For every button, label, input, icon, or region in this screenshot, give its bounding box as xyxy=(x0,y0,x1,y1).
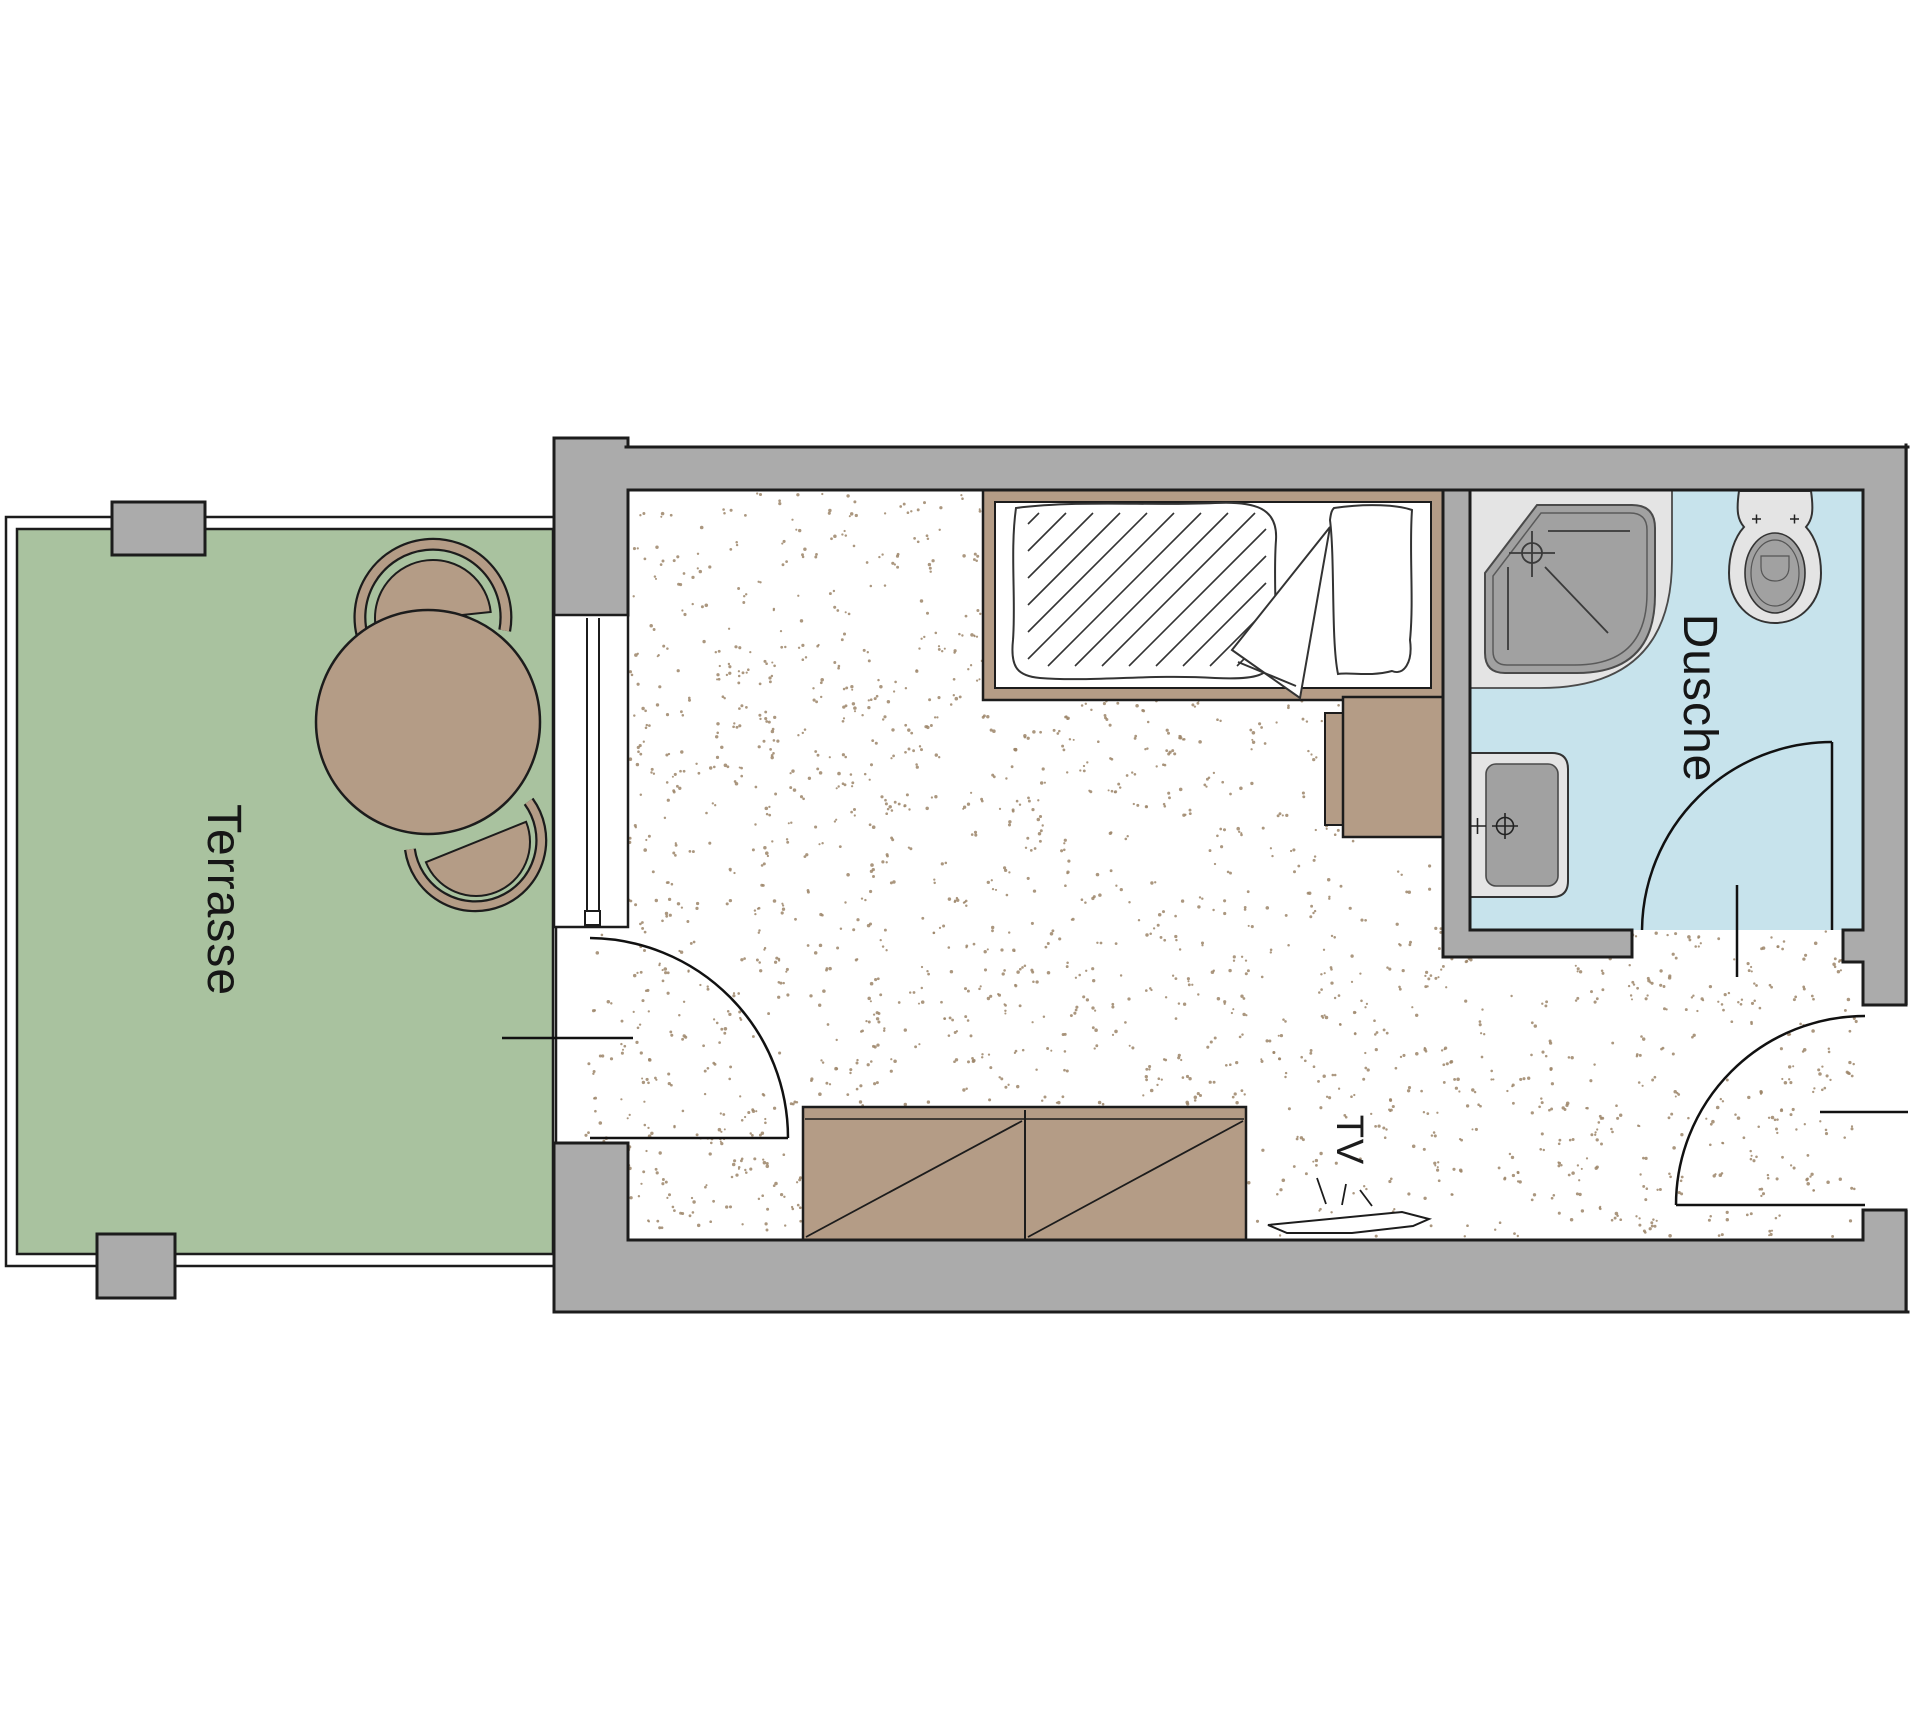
terrace-window xyxy=(554,615,628,927)
toilet xyxy=(1729,491,1821,623)
wall-west-pillar-top xyxy=(554,438,628,615)
wall-east-lower xyxy=(1863,1210,1908,1312)
toilet-flush xyxy=(1761,556,1789,581)
shower-room: Dusche xyxy=(1469,490,1863,930)
terrace-post-bottom xyxy=(97,1234,175,1298)
shower-room-label: Dusche xyxy=(1673,614,1726,783)
window-frame xyxy=(554,615,628,927)
bed-pillow xyxy=(1330,505,1412,674)
terrace: Terrasse xyxy=(6,517,561,1266)
terrace-post-top xyxy=(112,502,205,555)
floor-plan: Terrasse TV xyxy=(0,0,1920,1724)
wall-south xyxy=(554,1240,1908,1312)
tv-label: TV xyxy=(1328,1115,1370,1166)
wall-bathroom-west xyxy=(1443,490,1470,957)
window-sill-detail xyxy=(585,911,600,925)
terrace-label: Terrasse xyxy=(197,804,250,996)
wall-east-upper xyxy=(1863,447,1908,1005)
washbasin xyxy=(1469,753,1568,897)
wardrobe xyxy=(803,1107,1246,1240)
desk xyxy=(1325,697,1443,837)
desk-top xyxy=(1343,697,1443,837)
wall-bathroom-south xyxy=(1443,930,1632,957)
single-bed xyxy=(983,490,1443,700)
wall-east-bathroom-step xyxy=(1843,930,1908,962)
terrace-round-table xyxy=(316,610,540,834)
desk-chair xyxy=(1325,713,1343,825)
wall-north xyxy=(628,447,1908,490)
floor-plan-drawing: Terrasse TV xyxy=(0,0,1920,1724)
